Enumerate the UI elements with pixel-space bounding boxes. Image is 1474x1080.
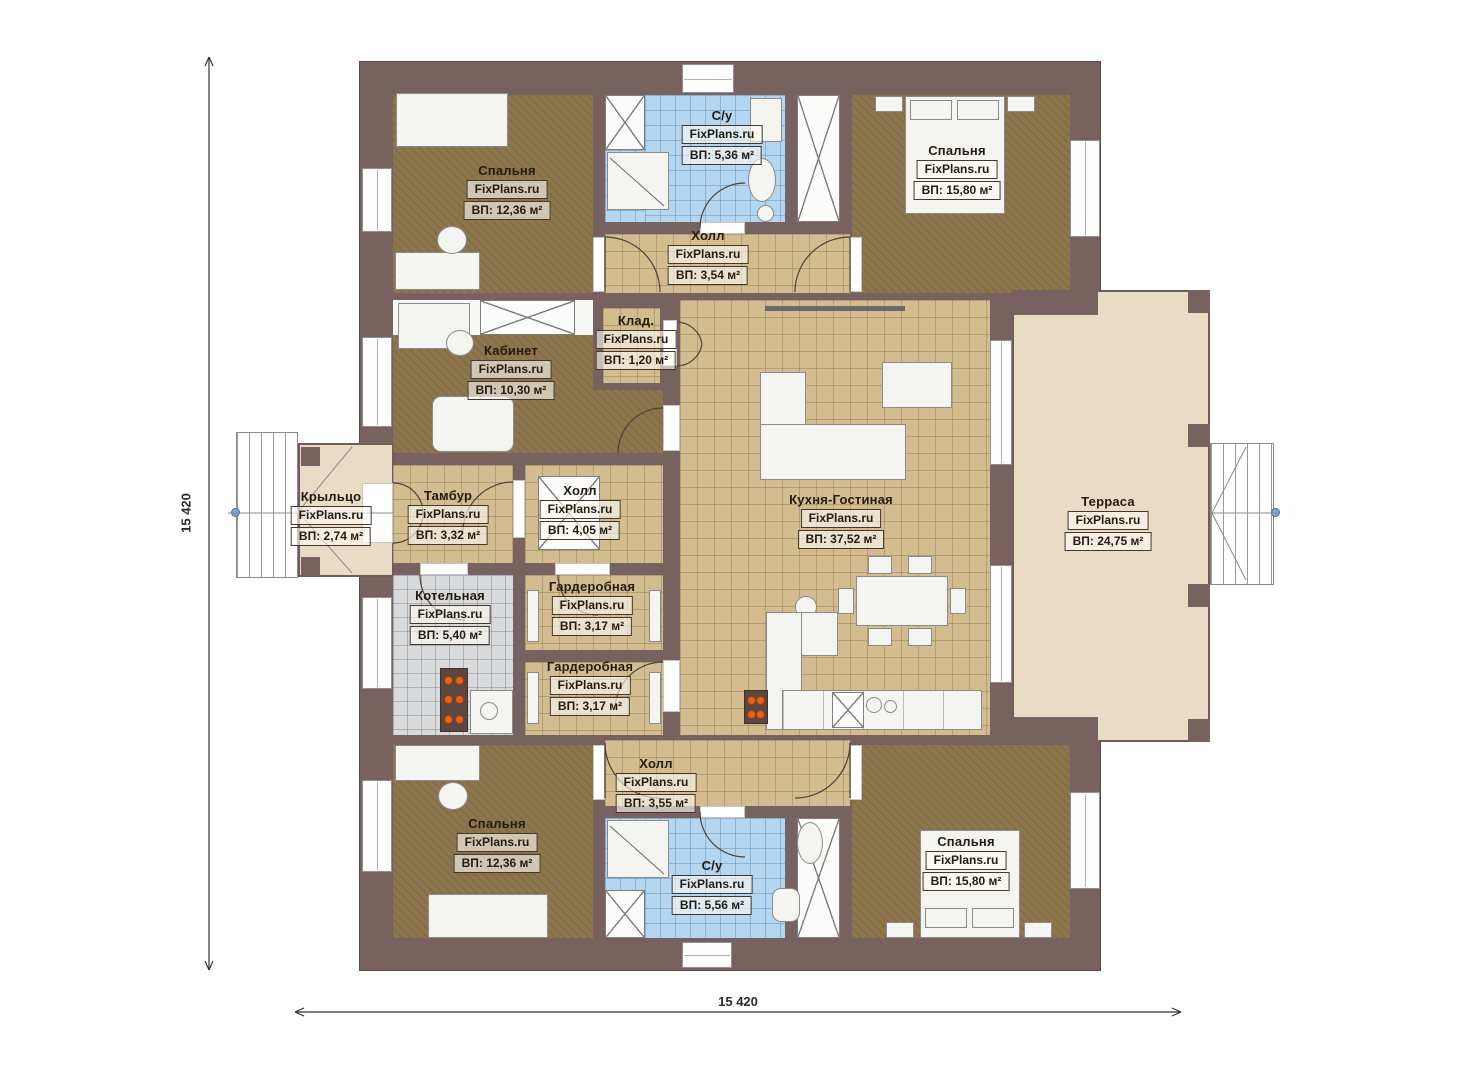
door-opening xyxy=(420,563,468,575)
dining-chair xyxy=(908,628,932,646)
nightstand xyxy=(1007,96,1035,112)
room-label-bathroom-bottom: С/у FixPlans.ru ВП: 5,56 м² xyxy=(672,858,753,915)
sink xyxy=(797,822,823,864)
desk xyxy=(395,252,480,290)
room-label-storage: Клад. FixPlans.ru ВП: 1,20 м² xyxy=(596,313,677,370)
room-watermark: FixPlans.ru xyxy=(550,676,631,695)
room-watermark: FixPlans.ru xyxy=(682,125,763,144)
window xyxy=(990,565,1012,683)
pillow xyxy=(910,100,952,120)
room-area: ВП: 10,30 м² xyxy=(468,381,555,400)
terrace-door xyxy=(990,340,1012,465)
room-name: Гардеробная xyxy=(549,579,635,594)
door-opening xyxy=(663,660,680,712)
room-label-boiler-room: Котельная FixPlans.ru ВП: 5,40 м² xyxy=(410,588,491,645)
boiler-unit xyxy=(440,668,468,732)
dining-chair xyxy=(868,628,892,646)
room-label-bedroom-top-left: Спальня FixPlans.ru ВП: 12,36 м² xyxy=(464,163,551,220)
room-watermark: FixPlans.ru xyxy=(668,245,749,264)
nightstand xyxy=(875,96,903,112)
room-name: Тамбур xyxy=(424,488,472,503)
room-watermark: FixPlans.ru xyxy=(552,596,633,615)
porch-post xyxy=(301,557,320,576)
dining-chair xyxy=(868,556,892,574)
room-watermark: FixPlans.ru xyxy=(291,506,372,525)
room-label-hall-top: Холл FixPlans.ru ВП: 3,54 м² xyxy=(668,228,749,285)
wardrobe-shelf xyxy=(527,590,539,642)
wardrobe-shelf xyxy=(527,672,539,724)
dining-chair xyxy=(950,588,966,614)
closet-top-2 xyxy=(797,95,840,222)
terrace-wall-bottom xyxy=(1012,717,1098,742)
room-watermark: FixPlans.ru xyxy=(471,360,552,379)
room-label-hall-bottom: Холл FixPlans.ru ВП: 3,55 м² xyxy=(616,756,697,813)
door-opening xyxy=(850,237,862,292)
room-area: ВП: 15,80 м² xyxy=(914,181,1001,200)
dimension-bottom: 15 420 xyxy=(718,994,758,1009)
door-opening xyxy=(850,745,862,800)
room-label-kitchen-living: Кухня-Гостиная FixPlans.ru ВП: 37,52 м² xyxy=(789,492,893,549)
dimension-left: 15 420 xyxy=(179,493,194,533)
porch-stairs xyxy=(236,432,298,578)
sofa xyxy=(432,396,514,452)
room-area: ВП: 3,17 м² xyxy=(552,617,632,636)
room-watermark: FixPlans.ru xyxy=(917,160,998,179)
room-name: Холл xyxy=(691,228,724,243)
pillow xyxy=(972,908,1014,928)
room-label-wardrobe-2: Гардеробная FixPlans.ru ВП: 3,17 м² xyxy=(547,659,633,716)
terrace-post xyxy=(1188,424,1210,447)
room-watermark: FixPlans.ru xyxy=(672,875,753,894)
dining-chair xyxy=(838,588,854,614)
room-name: Спальня xyxy=(937,834,995,849)
terrace-wall-top xyxy=(1012,290,1098,315)
room-area: ВП: 12,36 м² xyxy=(454,854,541,873)
toilet xyxy=(757,205,774,222)
room-name: Клад. xyxy=(618,313,654,328)
sofa xyxy=(428,894,548,938)
desk xyxy=(395,745,480,781)
porch-entry-marker xyxy=(231,508,240,517)
room-area: ВП: 24,75 м² xyxy=(1065,532,1152,551)
coffee-table xyxy=(882,362,952,408)
window xyxy=(362,168,392,232)
vent-shaft-top xyxy=(682,64,734,93)
room-area: ВП: 3,32 м² xyxy=(408,526,488,545)
room-area: ВП: 4,05 м² xyxy=(540,521,620,540)
room-name: Холл xyxy=(639,756,672,771)
room-watermark: FixPlans.ru xyxy=(457,833,538,852)
room-name: Спальня xyxy=(468,816,526,831)
room-area: ВП: 15,80 м² xyxy=(923,872,1010,891)
room-name: С/у xyxy=(712,108,733,123)
terrace-entry-marker xyxy=(1271,508,1280,517)
stove xyxy=(832,692,864,728)
terrace-stairs xyxy=(1210,443,1274,585)
chair xyxy=(438,782,468,810)
door-opening xyxy=(513,480,525,538)
room-area: ВП: 5,36 м² xyxy=(682,146,762,165)
closet-bottom-1 xyxy=(605,890,645,938)
terrace-post xyxy=(1188,584,1210,607)
room-area: ВП: 12,36 м² xyxy=(464,201,551,220)
room-label-bathroom-top: С/у FixPlans.ru ВП: 5,36 м² xyxy=(682,108,763,165)
room-name: Терраса xyxy=(1081,494,1135,509)
room-name: Котельная xyxy=(415,588,485,603)
window xyxy=(362,780,392,872)
door-opening xyxy=(700,806,745,818)
floor-plan: 15 420 15 420 Спальня FixPlans.ru ВП: 12… xyxy=(0,0,1474,1080)
shower xyxy=(607,820,669,878)
window xyxy=(362,597,392,689)
door-opening xyxy=(593,745,605,800)
room-watermark: FixPlans.ru xyxy=(540,500,621,519)
room-watermark: FixPlans.ru xyxy=(926,851,1007,870)
room-label-bedroom-bot-left: Спальня FixPlans.ru ВП: 12,36 м² xyxy=(454,816,541,873)
room-watermark: FixPlans.ru xyxy=(467,180,548,199)
room-name: Спальня xyxy=(928,143,986,158)
room-label-bedroom-top-right: Спальня FixPlans.ru ВП: 15,80 м² xyxy=(914,143,1001,200)
room-area: ВП: 3,54 м² xyxy=(668,266,748,285)
room-name: Спальня xyxy=(478,163,536,178)
closet-office xyxy=(480,300,575,335)
room-watermark: FixPlans.ru xyxy=(1068,511,1149,530)
room-watermark: FixPlans.ru xyxy=(408,505,489,524)
room-name: Кухня-Гостиная xyxy=(789,492,893,507)
room-label-office: Кабинет FixPlans.ru ВП: 10,30 м² xyxy=(468,343,555,400)
room-label-vestibule: Тамбур FixPlans.ru ВП: 3,32 м² xyxy=(408,488,489,545)
room-name: Кабинет xyxy=(484,343,538,358)
room-area: ВП: 3,55 м² xyxy=(616,794,696,813)
closet-top-1 xyxy=(605,95,645,150)
terrace-post xyxy=(1188,290,1210,313)
nightstand xyxy=(1024,922,1052,938)
dining-chair xyxy=(908,556,932,574)
sink xyxy=(866,697,882,713)
door-opening xyxy=(555,563,610,575)
shower xyxy=(607,152,669,210)
room-watermark: FixPlans.ru xyxy=(616,773,697,792)
tv xyxy=(765,306,905,311)
room-name: Гардеробная xyxy=(547,659,633,674)
wardrobe-shelf xyxy=(649,672,661,724)
door-opening xyxy=(663,405,680,451)
room-label-bedroom-bot-right: Спальня FixPlans.ru ВП: 15,80 м² xyxy=(923,834,1010,891)
porch-post xyxy=(301,447,320,466)
corner-sofa xyxy=(760,424,906,480)
room-area: ВП: 5,56 м² xyxy=(672,896,752,915)
room-watermark: FixPlans.ru xyxy=(410,605,491,624)
room-label-terrace: Терраса FixPlans.ru ВП: 24,75 м² xyxy=(1065,494,1152,551)
room-watermark: FixPlans.ru xyxy=(596,330,677,349)
room-watermark: FixPlans.ru xyxy=(801,509,882,528)
pillow xyxy=(957,100,999,120)
radiator xyxy=(744,690,768,724)
window xyxy=(362,337,392,427)
room-area: ВП: 1,20 м² xyxy=(596,351,676,370)
wardrobe-shelf xyxy=(649,590,661,642)
window xyxy=(1070,792,1100,889)
room-area: ВП: 3,17 м² xyxy=(550,697,630,716)
nightstand xyxy=(886,922,914,938)
bed-single xyxy=(396,93,508,147)
terrace-post xyxy=(1188,719,1210,742)
dining-table xyxy=(856,576,948,626)
toilet xyxy=(772,888,800,922)
room-name: Крыльцо xyxy=(301,489,362,504)
room-label-porch: Крыльцо FixPlans.ru ВП: 2,74 м² xyxy=(291,489,372,546)
room-area: ВП: 5,40 м² xyxy=(410,626,490,645)
kitchen-counter xyxy=(782,690,982,730)
window xyxy=(1070,140,1100,237)
room-label-hall-middle: Холл FixPlans.ru ВП: 4,05 м² xyxy=(540,483,621,540)
sink xyxy=(884,700,897,713)
door-opening xyxy=(593,237,605,292)
room-area: ВП: 37,52 м² xyxy=(798,530,885,549)
room-label-wardrobe-1: Гардеробная FixPlans.ru ВП: 3,17 м² xyxy=(549,579,635,636)
room-name: С/у xyxy=(702,858,723,873)
pillow xyxy=(925,908,967,928)
vent-shaft-bottom xyxy=(682,942,732,968)
sink xyxy=(480,702,498,720)
room-area: ВП: 2,74 м² xyxy=(291,527,371,546)
chair xyxy=(437,226,467,254)
room-name: Холл xyxy=(563,483,596,498)
